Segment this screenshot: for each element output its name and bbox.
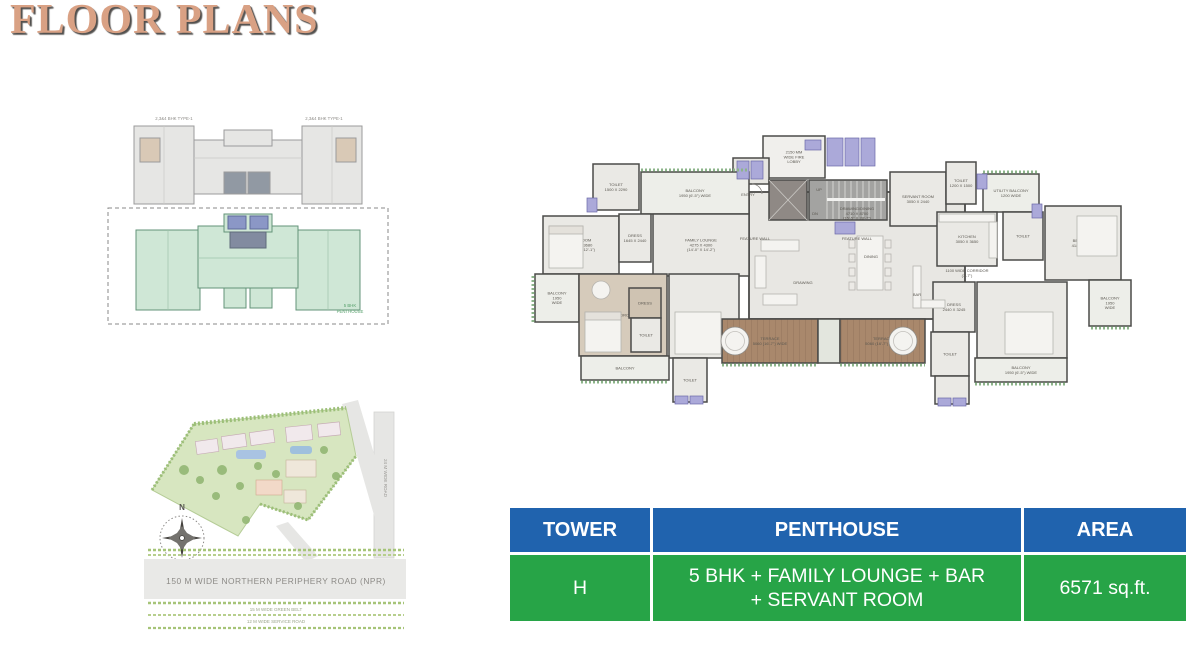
- bar-counter: [913, 266, 921, 308]
- npr-road-label: 150 M WIDE NORTHERN PERIPHERY ROAD (NPR): [166, 576, 386, 586]
- header-area: AREA: [1024, 508, 1186, 552]
- dining-table: [857, 236, 883, 290]
- key-plan-caption-line1: 5 BHK: [344, 303, 357, 308]
- sofa-2: [755, 256, 766, 288]
- kitchen-counter: [939, 214, 995, 222]
- label-feature-wall-left: FEATURE WALL: [740, 236, 771, 241]
- bed-left-bottom: [675, 312, 721, 354]
- room-toilet-right-bottom: TOILET: [931, 332, 969, 376]
- page-title: FLOOR PLANS: [10, 0, 319, 44]
- svg-text:DRESS: DRESS: [638, 300, 652, 305]
- room-utility-balcony: UTILITY BALCONY1200 WIDE: [983, 174, 1039, 212]
- penthouse-line-1: 5 BHK + FAMILY LOUNGE + BAR: [689, 564, 985, 588]
- room-toilet-right-top: TOILET1200 X 1500: [946, 162, 976, 204]
- sofa: [761, 240, 799, 251]
- svg-text:1200 X 1500: 1200 X 1500: [950, 183, 973, 188]
- room-toilet-bottom-left: TOILET: [673, 358, 707, 402]
- label-entry: ENTRY: [741, 192, 755, 197]
- service-road-label: 12 M WIDE SERVICE ROAD: [247, 619, 306, 624]
- side-road-label: 24 M WIDE ROAD: [383, 459, 388, 498]
- cell-penthouse: 5 BHK + FAMILY LOUNGE + BAR + SERVANT RO…: [653, 555, 1021, 621]
- svg-text:LOBBY: LOBBY: [787, 159, 801, 164]
- svg-text:1950 (6'-5") WIDE: 1950 (6'-5") WIDE: [1005, 370, 1038, 375]
- svg-text:(15'-5" X 28'-7"): (15'-5" X 28'-7"): [843, 216, 872, 221]
- svg-text:DRAWING: DRAWING: [793, 280, 812, 285]
- penthouse-floor-plan: 2150 MMWIDE FIRELOBBYTOILET1500 X 2290BA…: [505, 44, 1145, 428]
- label-stair-dn: DN: [812, 211, 818, 216]
- svg-text:3050 X 3650: 3050 X 3650: [956, 239, 979, 244]
- room-balcony-bottom-right: BALCONY1950 (6'-5") WIDE: [975, 358, 1067, 382]
- room-dress-master: DRESS: [629, 288, 661, 318]
- svg-text:(14'-0" X 14'-2"): (14'-0" X 14'-2"): [687, 247, 716, 252]
- room-toilet-left-top: TOILET1500 X 2290: [593, 164, 639, 210]
- svg-text:5060 (16'-7") WIDE: 5060 (16'-7") WIDE: [753, 341, 788, 346]
- svg-text:1950 (6'-5") WIDE: 1950 (6'-5") WIDE: [679, 193, 712, 198]
- key-plan-caption-line2: PENTHOUSE: [337, 309, 364, 314]
- room-dress-left: DRESS1645 X 2440: [619, 214, 651, 262]
- label-bar: BAR: [913, 292, 921, 297]
- spec-table: TOWER PENTHOUSE AREA H 5 BHK + FAMILY LO…: [510, 508, 1186, 624]
- label-stair-up: UP: [816, 187, 822, 192]
- svg-text:WIDE: WIDE: [1105, 305, 1116, 310]
- cell-tower: H: [510, 555, 650, 621]
- floor-plans-page: FLOOR PLANS 2,3&4 BHK TYPE-1 2,3&4 BHK T…: [0, 0, 1200, 664]
- bar-counter-2: [921, 300, 945, 308]
- svg-text:BAR: BAR: [913, 292, 921, 297]
- pool-2: [290, 446, 312, 454]
- svg-text:DINING: DINING: [864, 254, 878, 259]
- round-table: [592, 281, 610, 299]
- bed-right-top: [1077, 216, 1117, 256]
- label-drawing: DRAWING: [793, 280, 812, 285]
- kitchen-counter-2: [989, 222, 997, 258]
- room-terrace-planter: [818, 319, 840, 363]
- key-plan: 2,3&4 BHK TYPE-1 2,3&4 BHK TYPE-1: [98, 96, 398, 351]
- sofa-3: [763, 294, 797, 305]
- room-toilet-master: TOILET: [631, 318, 661, 352]
- compass-north-label: N: [179, 503, 185, 512]
- npr-band: 150 M WIDE NORTHERN PERIPHERY ROAD (NPR)…: [144, 550, 406, 628]
- room-balcony-right: BALCONY1950WIDE: [1089, 280, 1131, 326]
- label-dining: DINING: [864, 254, 878, 259]
- site-map: 24 M WIDE ROAD: [138, 398, 416, 664]
- spec-table-header-row: TOWER PENTHOUSE AREA: [510, 508, 1186, 552]
- svg-text:FEATURE WALL: FEATURE WALL: [842, 236, 873, 241]
- key-plan-green-unit: [136, 214, 360, 310]
- svg-text:3050 X 2440: 3050 X 2440: [907, 199, 930, 204]
- svg-text:FEATURE WALL: FEATURE WALL: [740, 236, 771, 241]
- header-tower: TOWER: [510, 508, 650, 552]
- floor-plan-rooms: 2150 MMWIDE FIRELOBBYTOILET1500 X 2290BA…: [535, 136, 1131, 404]
- header-penthouse: PENTHOUSE: [653, 508, 1021, 552]
- svg-text:ENTRY: ENTRY: [741, 192, 755, 197]
- svg-text:1500 X 2290: 1500 X 2290: [605, 187, 628, 192]
- key-plan-label-left: 2,3&4 BHK TYPE-1: [155, 116, 193, 121]
- label-feature-wall-right: FEATURE WALL: [842, 236, 873, 241]
- svg-text:1200 WIDE: 1200 WIDE: [1001, 193, 1022, 198]
- svg-text:TOILET: TOILET: [943, 351, 957, 356]
- room-toilet-right-mid: TOILET: [1003, 212, 1043, 260]
- key-plan-label-right: 2,3&4 BHK TYPE-1: [305, 116, 343, 121]
- spec-table-data-row: H 5 BHK + FAMILY LOUNGE + BAR + SERVANT …: [510, 555, 1186, 621]
- svg-text:(3'-7"): (3'-7"): [962, 273, 973, 278]
- room-balcony-bottom-left: BALCONY: [581, 356, 669, 380]
- svg-text:BALCONY: BALCONY: [615, 365, 634, 370]
- room-balcony-left: BALCONY1950WIDE: [535, 274, 579, 322]
- svg-text:TOILET: TOILET: [1016, 233, 1030, 238]
- pool: [236, 450, 266, 459]
- svg-text:2440 X 3245: 2440 X 3245: [943, 307, 966, 312]
- svg-text:WIDE: WIDE: [552, 300, 563, 305]
- cell-area: 6571 sq.ft.: [1024, 555, 1186, 621]
- key-plan-grey-unit: [134, 126, 362, 204]
- room-balcony-top-left: BALCONY1950 (6'-5") WIDE: [641, 172, 749, 214]
- green-belt-label: 15 M WIDE GREEN BELT: [250, 607, 303, 612]
- svg-text:TOILET: TOILET: [683, 377, 697, 382]
- bed-right-bottom: [1005, 312, 1053, 354]
- penthouse-line-2: + SERVANT ROOM: [751, 588, 924, 612]
- svg-text:DN: DN: [812, 211, 818, 216]
- svg-text:UP: UP: [816, 187, 822, 192]
- svg-text:1645 X 2440: 1645 X 2440: [624, 238, 647, 243]
- room-family-lounge: FAMILY LOUNGE4275 X 4300(14'-0" X 14'-2"…: [653, 214, 749, 276]
- svg-text:TOILET: TOILET: [639, 332, 653, 337]
